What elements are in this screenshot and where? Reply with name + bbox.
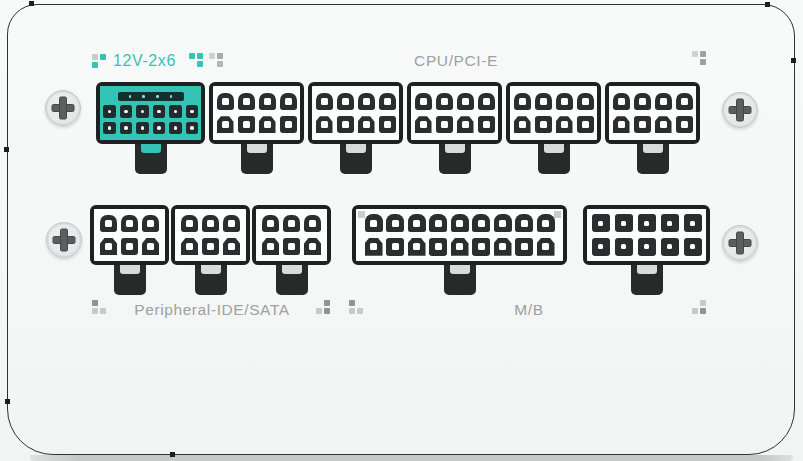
pin-hole — [285, 121, 292, 128]
cable-clip-tab — [340, 144, 372, 174]
pin-hole — [342, 98, 349, 105]
pin-hole — [157, 110, 161, 114]
pin-socket — [415, 93, 432, 110]
sense-pin-strip — [118, 92, 184, 101]
pixel-dot — [700, 308, 706, 314]
pin-hole — [342, 121, 349, 128]
pixel-dots-icon — [692, 300, 706, 314]
pixel-dot — [100, 308, 106, 314]
screw-icon-top-right — [722, 92, 758, 128]
pin-socket — [262, 238, 279, 255]
pin-socket — [615, 214, 633, 232]
pin-hole — [392, 220, 399, 227]
pin-hole — [639, 121, 646, 128]
clip-tongue — [141, 144, 161, 153]
pin-hole — [667, 244, 673, 250]
pin-hole — [309, 243, 316, 250]
pin-hole — [222, 98, 229, 105]
pin-hole — [243, 98, 250, 105]
pin-row — [510, 116, 597, 133]
pin-socket — [217, 93, 234, 110]
connector-aux-10pin — [583, 205, 710, 265]
clip-tongue — [643, 144, 663, 153]
pixel-dots-icon — [92, 300, 106, 314]
pin-hole — [190, 110, 194, 114]
pin-socket — [103, 122, 116, 135]
pin-hole — [264, 121, 271, 128]
pin-row — [411, 116, 498, 133]
pin-socket — [283, 215, 300, 232]
connector-group-12v-2x6 — [96, 82, 205, 144]
pin-socket — [494, 238, 512, 256]
pin-socket — [514, 116, 531, 133]
pin-socket — [142, 215, 159, 232]
pin-socket — [661, 238, 679, 256]
connector-group-cpu-pci-e — [209, 82, 700, 144]
pin-hole — [141, 126, 145, 130]
connector-cpu-pcie-group-3 — [407, 82, 502, 144]
pin-socket — [494, 214, 512, 232]
pin-socket — [365, 214, 383, 232]
cable-clip-tab — [276, 265, 308, 295]
pixel-dot — [692, 308, 698, 314]
pin-socket — [556, 116, 573, 133]
pin-hole — [598, 221, 604, 227]
pin-hole — [478, 243, 485, 250]
pin-row — [312, 116, 399, 133]
pin-hole — [363, 121, 370, 128]
pin-hole — [186, 220, 193, 227]
pin-socket — [613, 93, 630, 110]
pin-row — [411, 93, 498, 110]
pin-socket — [472, 238, 490, 256]
pin-socket — [472, 214, 490, 232]
connector-v12-2x6 — [96, 82, 205, 144]
pin-row — [94, 215, 165, 232]
pin-socket — [386, 238, 404, 256]
pixel-dot — [349, 308, 355, 314]
clip-tongue — [346, 144, 366, 153]
sense-pin — [156, 95, 159, 98]
pin-hole — [542, 243, 549, 250]
pin-socket — [259, 93, 276, 110]
cable-clip-tab — [114, 265, 146, 295]
sense-pin — [170, 95, 173, 98]
pin-hole — [174, 110, 178, 114]
panel-tick-mark — [4, 147, 9, 152]
pin-socket — [121, 215, 138, 232]
connector-peripheral-group-3 — [252, 205, 331, 265]
pin-socket — [655, 116, 672, 133]
pin-socket — [186, 105, 199, 118]
pin-row — [175, 238, 246, 255]
pin-hole — [621, 244, 627, 250]
pin-row — [356, 214, 563, 232]
sense-pin — [129, 95, 132, 98]
pin-row — [609, 116, 696, 133]
pin-hole — [681, 98, 688, 105]
pixel-dots-icon — [209, 53, 223, 67]
pin-socket — [655, 93, 672, 110]
pin-socket — [415, 116, 432, 133]
pin-socket — [535, 116, 552, 133]
pin-hole — [542, 220, 549, 227]
pixel-dot — [700, 51, 706, 57]
screw-icon-top-left — [45, 90, 81, 126]
connector-face — [411, 86, 498, 140]
pixel-dot — [357, 308, 363, 314]
pin-socket — [577, 93, 594, 110]
pin-hole — [264, 98, 271, 105]
pin-row — [256, 215, 327, 232]
pin-socket — [556, 93, 573, 110]
pin-hole — [441, 98, 448, 105]
connector-face — [100, 86, 201, 140]
pin-hole — [621, 221, 627, 227]
clip-tongue — [120, 265, 140, 274]
pin-socket — [100, 215, 117, 232]
pin-hole — [370, 243, 377, 250]
pin-hole — [521, 220, 528, 227]
pin-hole — [519, 98, 526, 105]
pin-hole — [413, 220, 420, 227]
clip-tongue — [282, 265, 302, 274]
pin-socket — [181, 215, 198, 232]
pin-socket — [358, 93, 375, 110]
pin-hole — [639, 98, 646, 105]
connector-cpu-pcie-group-1 — [209, 82, 304, 144]
pin-hole — [483, 98, 490, 105]
cable-clip-tab — [538, 144, 570, 174]
pin-socket — [304, 238, 321, 255]
cable-clip-tab — [631, 265, 663, 295]
pin-row — [609, 93, 696, 110]
pin-socket — [136, 105, 149, 118]
pin-socket — [676, 116, 693, 133]
pin-socket — [358, 116, 375, 133]
pin-hole — [561, 98, 568, 105]
clip-tongue — [450, 265, 470, 274]
pixel-dot — [92, 62, 98, 68]
cable-clip-tab — [241, 144, 273, 174]
connector-face — [213, 86, 300, 140]
pin-row — [312, 93, 399, 110]
pin-hole — [618, 98, 625, 105]
pixel-dot — [217, 61, 223, 67]
pin-hole — [285, 98, 292, 105]
pin-hole — [186, 243, 193, 250]
pin-socket — [316, 93, 333, 110]
panel-tick-mark — [765, 2, 770, 7]
pixel-dots-icon — [189, 53, 203, 67]
pin-row — [100, 105, 201, 118]
pin-socket — [121, 238, 138, 255]
pin-socket — [223, 215, 240, 232]
pin-hole — [681, 121, 688, 128]
pin-socket — [238, 116, 255, 133]
pin-hole — [228, 243, 235, 250]
pin-socket — [537, 238, 555, 256]
pin-socket — [202, 238, 219, 255]
cable-clip-tab — [444, 265, 476, 295]
pin-hole — [462, 121, 469, 128]
pin-row — [356, 238, 563, 256]
connector-mb-18pin — [352, 205, 567, 265]
pin-socket — [304, 215, 321, 232]
pixel-dot — [349, 300, 355, 306]
pin-socket — [478, 116, 495, 133]
pixel-dot — [92, 300, 98, 306]
screw-icon-bottom-right — [722, 225, 758, 261]
panel-tick-mark — [791, 58, 796, 63]
pin-socket — [238, 93, 255, 110]
pin-hole — [321, 98, 328, 105]
pin-hole — [618, 121, 625, 128]
pin-hole — [105, 243, 112, 250]
pin-hole — [582, 98, 589, 105]
pin-hole — [370, 220, 377, 227]
label-cpu-pci-e: CPU/PCI-E — [414, 52, 498, 70]
psu-modular-panel-photo: 12V-2x6 CPU/PCI-E Peripheral-IDE/SATA M/… — [0, 0, 803, 461]
clip-tongue — [544, 144, 564, 153]
pin-hole — [384, 121, 391, 128]
panel-tick-mark — [5, 399, 10, 404]
pin-socket — [120, 105, 133, 118]
pin-hole — [267, 243, 274, 250]
connector-peripheral-group-2 — [171, 205, 250, 265]
pin-socket — [181, 238, 198, 255]
pin-socket — [514, 93, 531, 110]
connector-peripheral-group-1 — [90, 205, 169, 265]
pixel-dot — [324, 308, 330, 314]
pin-row — [213, 93, 300, 110]
pin-socket — [661, 214, 679, 232]
pixel-dots-icon — [92, 54, 106, 68]
pin-socket — [408, 238, 426, 256]
pixel-dot — [217, 53, 223, 59]
pin-hole — [435, 243, 442, 250]
label-12v-2x6: 12V-2x6 — [113, 52, 176, 70]
pin-socket — [365, 238, 383, 256]
connector-face — [94, 209, 165, 261]
pin-socket — [223, 238, 240, 255]
pin-socket — [100, 238, 117, 255]
pin-socket — [577, 116, 594, 133]
pin-socket — [186, 122, 199, 135]
pin-socket — [429, 238, 447, 256]
cable-clip-tab — [135, 144, 167, 174]
pin-hole — [462, 98, 469, 105]
pin-row — [510, 93, 597, 110]
connector-cpu-pcie-group-5 — [605, 82, 700, 144]
cable-clip-tab — [439, 144, 471, 174]
pixel-dots-icon — [316, 300, 330, 314]
pin-socket — [478, 93, 495, 110]
pin-hole — [363, 98, 370, 105]
pin-hole — [222, 121, 229, 128]
pin-socket — [592, 238, 610, 256]
pin-socket — [169, 105, 182, 118]
pin-socket — [638, 238, 656, 256]
connector-face — [256, 209, 327, 261]
pin-socket — [337, 116, 354, 133]
pin-hole — [582, 121, 589, 128]
pin-hole — [124, 110, 128, 114]
cable-clip-tab — [195, 265, 227, 295]
pin-hole — [141, 110, 145, 114]
clip-tongue — [201, 265, 221, 274]
pin-hole — [108, 110, 112, 114]
pin-socket — [634, 93, 651, 110]
pin-hole — [598, 244, 604, 250]
pin-socket — [259, 116, 276, 133]
pin-hole — [174, 126, 178, 130]
pin-hole — [441, 121, 448, 128]
pin-hole — [660, 98, 667, 105]
pin-hole — [288, 243, 295, 250]
pin-socket — [515, 238, 533, 256]
pin-hole — [499, 220, 506, 227]
connector-face — [587, 209, 706, 261]
pin-hole — [321, 121, 328, 128]
pin-socket — [379, 93, 396, 110]
pixel-dot — [700, 59, 706, 65]
pin-hole — [147, 220, 154, 227]
panel-tick-mark — [170, 452, 175, 457]
connector-group-mb — [352, 205, 567, 265]
pin-socket — [535, 93, 552, 110]
pixel-dot — [92, 308, 98, 314]
sense-pin — [142, 95, 145, 98]
connector-group-peripheral — [90, 205, 331, 265]
pin-hole — [644, 244, 650, 250]
pin-hole — [207, 220, 214, 227]
pin-hole — [483, 121, 490, 128]
pin-hole — [228, 220, 235, 227]
pin-socket — [337, 93, 354, 110]
pin-hole — [456, 220, 463, 227]
pin-socket — [153, 122, 166, 135]
label-peripheral-ide-sata: Peripheral-IDE/SATA — [134, 301, 290, 319]
pin-socket — [120, 122, 133, 135]
pin-hole — [108, 126, 112, 130]
pin-hole — [690, 221, 696, 227]
pin-socket — [515, 214, 533, 232]
pin-hole — [420, 98, 427, 105]
clip-tongue — [637, 265, 657, 274]
pixel-dot — [100, 54, 106, 60]
pin-socket — [537, 214, 555, 232]
pin-hole — [519, 121, 526, 128]
pin-hole — [384, 98, 391, 105]
connector-face — [312, 86, 399, 140]
pin-socket — [676, 93, 693, 110]
pin-row — [587, 214, 706, 232]
pin-socket — [436, 116, 453, 133]
pixel-dot — [189, 53, 195, 59]
pin-socket — [615, 238, 633, 256]
pin-row — [175, 215, 246, 232]
pin-hole — [435, 220, 442, 227]
pin-socket — [169, 122, 182, 135]
pixel-dots-icon — [692, 51, 706, 65]
pin-hole — [126, 243, 133, 250]
clip-tongue — [445, 144, 465, 153]
connector-cpu-pcie-group-4 — [506, 82, 601, 144]
clip-tongue — [247, 144, 267, 153]
panel-bottom-edge — [30, 455, 793, 461]
pin-hole — [521, 243, 528, 250]
pin-socket — [280, 93, 297, 110]
pin-socket — [142, 238, 159, 255]
connector-face — [356, 209, 563, 261]
pin-hole — [413, 243, 420, 250]
pin-hole — [644, 221, 650, 227]
pixel-dots-icon — [349, 300, 363, 314]
connector-group-aux-10pin — [583, 205, 710, 265]
pin-socket — [457, 93, 474, 110]
pin-hole — [420, 121, 427, 128]
pin-hole — [288, 220, 295, 227]
pixel-dot — [209, 53, 215, 59]
pin-socket — [202, 215, 219, 232]
pin-socket — [436, 93, 453, 110]
pixel-dot — [197, 53, 203, 59]
pin-hole — [690, 244, 696, 250]
pin-row — [587, 238, 706, 256]
pin-socket — [429, 214, 447, 232]
pin-row — [256, 238, 327, 255]
pixel-dot — [700, 300, 706, 306]
pin-socket — [613, 116, 630, 133]
connector-face — [510, 86, 597, 140]
pin-hole — [499, 243, 506, 250]
pin-hole — [105, 220, 112, 227]
pin-hole — [190, 126, 194, 130]
pin-hole — [478, 220, 485, 227]
pixel-dot — [316, 308, 322, 314]
pin-socket — [592, 214, 610, 232]
pin-socket — [316, 116, 333, 133]
pin-hole — [456, 243, 463, 250]
pin-socket — [638, 214, 656, 232]
pixel-dot — [692, 51, 698, 57]
pin-hole — [267, 220, 274, 227]
pin-socket — [451, 238, 469, 256]
pin-hole — [126, 220, 133, 227]
pin-hole — [667, 221, 673, 227]
pin-socket — [262, 215, 279, 232]
pin-socket — [103, 105, 116, 118]
pixel-dot — [197, 61, 203, 67]
pixel-dot — [92, 54, 98, 60]
cable-clip-tab — [637, 144, 669, 174]
pin-socket — [408, 214, 426, 232]
pin-socket — [634, 116, 651, 133]
panel-tick-mark — [29, 1, 34, 6]
pin-socket — [684, 214, 702, 232]
pin-hole — [561, 121, 568, 128]
pin-socket — [386, 214, 404, 232]
pin-socket — [684, 238, 702, 256]
pin-socket — [283, 238, 300, 255]
pin-socket — [379, 116, 396, 133]
pin-hole — [207, 243, 214, 250]
connector-cpu-pcie-group-2 — [308, 82, 403, 144]
screw-icon-bottom-left — [46, 222, 82, 258]
connector-face — [609, 86, 696, 140]
pin-hole — [540, 98, 547, 105]
